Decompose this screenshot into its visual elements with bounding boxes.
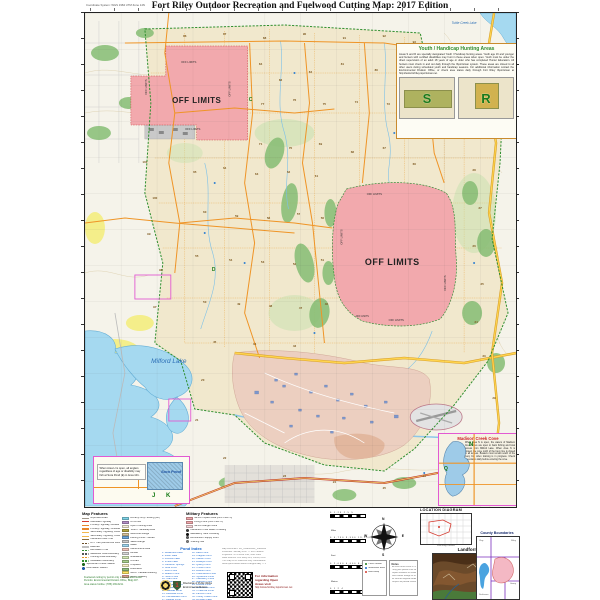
area-number: 55 (195, 254, 199, 258)
area-number: 50 (203, 300, 207, 304)
legend-label: Ammunition Supply Point (190, 537, 218, 540)
area-number: 63 (255, 172, 259, 176)
legend-label: Grassland (130, 556, 142, 559)
legend-label: Secondary Highway, Divided (90, 531, 120, 534)
map-label: OFF LIMITS (389, 318, 404, 322)
area-number: 51 (321, 258, 325, 262)
area-number: 47 (299, 306, 303, 310)
legend-label: Cropland (130, 564, 140, 567)
legend-item: Mandatory Tank Crossing (186, 533, 232, 536)
legend-item: Open Hunting Area (122, 525, 160, 528)
legend-swatch (82, 532, 89, 533)
area-number: 99 (147, 232, 151, 236)
area-number: 29 (492, 396, 496, 400)
county-label: Geary (510, 583, 516, 585)
legend-swatch (122, 548, 129, 551)
legend-item: Hardened Tank Trail (82, 538, 120, 541)
legend-label: Installation Boundary (90, 560, 114, 563)
legend-item: Grassland (122, 556, 160, 559)
map-label: OFF LIMITS (339, 229, 343, 244)
area-number: 69 (319, 142, 323, 146)
map-features-legend: Map Features Improved RoadInterstate Hig… (82, 511, 160, 579)
compass-s: S (382, 553, 384, 557)
symbols-box: Check StationInformation BoardBoat Ramp (362, 560, 387, 596)
legend-label: Interstate Highway (90, 521, 111, 524)
symbol-icon (365, 567, 368, 570)
youth-inset-title: Youth / Handicap Hunting Areas (399, 46, 514, 52)
legend-item: Multi-Use Range (122, 533, 160, 536)
legend-item: Secondary Highway, Undivided (82, 535, 120, 538)
area-number: 76 (293, 98, 297, 102)
legend-item: Fishing Pond / Stream (122, 536, 160, 539)
area-number: 26 (423, 474, 427, 478)
map-label: OFF LIMITS (172, 96, 221, 105)
legend-swatch (122, 552, 129, 555)
legend-swatch (122, 556, 129, 559)
county-label: Clay (479, 540, 483, 542)
legend-label: Open Hunting Area (130, 525, 152, 528)
logos: 1 Directorate of Public Works Environmen… (160, 580, 212, 591)
area-number: 49 (237, 302, 241, 306)
area-number: 68 (351, 150, 355, 154)
isportsman-url[interactable]: http://www.fortriley.isportsman.net (255, 586, 307, 589)
legend-swatch (186, 525, 193, 528)
legend-label: Improved Road (90, 517, 107, 520)
legend-swatch (82, 525, 89, 526)
map-label: OFF LIMITS (367, 192, 382, 196)
legend-swatch (82, 536, 89, 537)
area-number: 64 (223, 166, 227, 170)
legend-item: Brushland (122, 568, 160, 571)
military-features-legend: Military Features MPRC Impact Area (OFF … (186, 511, 232, 544)
credits: Fuelwood cutting by permit only in desig… (84, 576, 160, 586)
area-number: 92 (383, 34, 387, 38)
qr-caption: For information regarding Open Areas vis… (255, 574, 307, 589)
legend-label: Airfield (130, 552, 138, 555)
legend-label: Maneuver Area Boundary (90, 553, 119, 556)
legend-swatch (82, 521, 89, 522)
location-diagram: LOCATION DIAGRAM Fort Riley, Kansas (420, 508, 472, 547)
legend-item: Youth / Handicap Area (122, 529, 160, 532)
legend-item: Primary Highway, Undivided (82, 528, 120, 531)
area-number: 22 (223, 456, 227, 460)
area-number: 84 (259, 62, 263, 66)
legend-item: ATV Trail (Authorized Routes Only) (82, 542, 120, 545)
legend-item: Interstate Highway (82, 521, 120, 524)
area-number: 74 (355, 100, 359, 104)
legend-label: Hardened Tank Trail (90, 538, 113, 541)
sora-note: When Area H is open, all anglers regardl… (97, 464, 146, 480)
legend-label: Training Site (190, 541, 204, 544)
legend-label: Sportsman Check Station (86, 563, 115, 566)
county-label: Riley (511, 540, 516, 542)
legend-item: MOUT Facade Building (122, 571, 160, 574)
area-n-label: N (469, 442, 473, 448)
map-metadata: Map Document: FR_OutdoorRec_Fuelwood_201… (222, 548, 266, 567)
area-number: 45 (213, 340, 217, 344)
legend-item: Sportsman Check Station (82, 563, 120, 566)
legend-swatch (82, 550, 89, 551)
pond-index-title: Pond Index (162, 546, 220, 551)
legend-swatch (122, 560, 129, 563)
madison-creek-inset: Madison Creek Cove When Area N is open, … (438, 433, 517, 506)
area-number: 53 (261, 260, 265, 264)
map-features-title: Map Features (82, 511, 160, 516)
legend-label: Brushland (130, 568, 141, 571)
map-label: OFF LIMITS (185, 127, 200, 131)
legend-swatch (186, 521, 193, 524)
legend-label: Information Station (86, 567, 107, 570)
legend-item: Water (122, 544, 160, 547)
legend-item: Cropland (122, 564, 160, 567)
compass-rose: N E S W (368, 521, 400, 553)
notes-box: Notes All users must check in / out dail… (389, 560, 418, 596)
sora-pond-shape (147, 462, 183, 490)
map-label: OFF LIMITS (144, 79, 148, 94)
sora-pond-label: Sora Pond (161, 469, 181, 474)
legend-swatch (122, 536, 129, 539)
inset-road (94, 487, 154, 488)
legend-swatch (122, 529, 129, 532)
area-number: 59 (235, 214, 239, 218)
military-features-title: Military Features (186, 511, 232, 516)
legend-label: Orchard (130, 560, 139, 563)
legend-label: Fishing Pond / Stream (130, 537, 155, 540)
area-number: 56 (321, 216, 325, 220)
legend-swatch (186, 529, 189, 532)
legend-swatch (82, 557, 89, 558)
area-number: 60 (203, 210, 207, 214)
area-number: 34 (474, 320, 478, 324)
area-number: 58 (267, 216, 271, 220)
area-number: 24 (333, 480, 337, 484)
qr-block: For information regarding Open Areas vis… (227, 572, 307, 598)
area-number: 83 (279, 78, 283, 82)
legend-item: Skeet Range (122, 540, 160, 543)
main-map: OFF LIMITSOFF LIMITSOFF LIMITSOFF LIMITS… (84, 12, 517, 508)
area-number: 23 (283, 474, 287, 478)
legend-label: Youth / Handicap Area (130, 529, 155, 532)
area-number: 77 (261, 102, 265, 106)
legend-label: Archery Only Hunting (AO) (130, 517, 160, 520)
area-number: 33 (482, 354, 486, 358)
map-page: Fort Riley Outdoor Recreation and Fuelwo… (0, 0, 600, 600)
legend-swatch (82, 553, 89, 554)
area-letter: C (249, 97, 253, 103)
legend-item: Airfield (122, 552, 160, 555)
pond-index: Pond Index 1. Breakneck Lake2. Moon Lake… (162, 546, 220, 600)
legend-label: MPRC Impact Area (OFF LIMITS) (194, 517, 232, 520)
area-number: 65 (193, 170, 197, 174)
legend-label: Primary Highway, Divided (90, 524, 119, 527)
location-diagram-title: LOCATION DIAGRAM (420, 508, 472, 512)
legend-swatch (82, 567, 85, 570)
area-number: 52 (293, 262, 297, 266)
legend-item: Archery Only Hunting (AO) (122, 517, 160, 520)
area-number: 100 (152, 196, 157, 200)
legend-swatch (82, 543, 89, 544)
big-red-one-icon: 1 (173, 581, 181, 591)
area-number: 90 (303, 32, 307, 36)
legend-swatch (186, 517, 193, 520)
location-diagram-map (420, 513, 472, 545)
map-label: OFF LIMITS (181, 60, 196, 64)
symbol-icon (365, 563, 368, 566)
map-label: OFF LIMITS (356, 315, 369, 318)
legend-swatch (122, 517, 129, 520)
area-number: 37 (478, 206, 482, 210)
legend-item: Installation Boundary (82, 560, 120, 563)
legend-item: Cantonment Area (122, 548, 160, 551)
legend-item: Orchard (122, 560, 160, 563)
legend-item: Training Site (186, 540, 232, 543)
area-number: 71 (259, 142, 263, 146)
dpw-seal-icon (160, 580, 171, 591)
legend-label: MPRC Danger Zone (194, 525, 217, 528)
legend-item: MPRC Impact Area (OFF LIMITS) (186, 517, 232, 520)
area-q-label: Q (444, 466, 448, 472)
legend-item: Recreation Trail (82, 549, 120, 552)
legend-swatch (122, 544, 129, 547)
area-s-label: S (400, 78, 454, 118)
legend-item: Railroad (82, 546, 120, 549)
legend-swatch (122, 525, 129, 528)
legend-label: Firing Point (OFF LIMITS) (194, 521, 223, 524)
area-number: 36 (472, 244, 476, 248)
county-boundaries-map: Clay Riley Geary Dickinson (476, 536, 520, 600)
area-number: 80 (375, 68, 379, 72)
compass-star (368, 521, 400, 553)
area-number: 101 (142, 160, 147, 164)
legend-swatch (122, 564, 129, 567)
legend-swatch (82, 518, 89, 519)
legend-item: Improved Road (82, 517, 120, 520)
legend-label: Hunting Area Boundary (90, 556, 116, 559)
area-number: 81 (341, 62, 345, 66)
legend-item: Ammunition Supply Point (186, 536, 232, 539)
symbol-item: Information Board (365, 567, 385, 570)
area-number: 98 (159, 268, 163, 272)
symbol-item: Check Station (365, 563, 385, 566)
legend-label: Railroad (90, 546, 100, 549)
youth-inset-body: Areas S and R are specially designated Y… (399, 53, 514, 75)
legend-swatch (82, 546, 89, 548)
area-number: 61 (315, 174, 319, 178)
area-number: 62 (287, 170, 291, 174)
legend-label: Mandatory Tank Crossing (190, 533, 219, 536)
legend-swatch (186, 540, 189, 543)
youth-handicap-inset: Youth / Handicap Hunting Areas Areas S a… (396, 43, 517, 139)
legend-label: Off Limits (130, 521, 141, 524)
area-number: 86 (183, 34, 187, 38)
logo-caption: Directorate of Public Works Environmenta… (183, 582, 212, 588)
map-label: OFF LIMITS (365, 257, 420, 267)
area-number: 46 (325, 302, 329, 306)
qr-code (227, 572, 253, 598)
map-label: OFF LIMITS (228, 81, 232, 96)
area-letter: D (212, 267, 216, 273)
legend-swatch (82, 563, 85, 566)
map-label: Milford Lake (151, 358, 187, 365)
legend-item: Off Limits (122, 521, 160, 524)
sora-pond-inset: When Area H is open, all anglers regardl… (93, 456, 190, 504)
area-number: 87 (223, 32, 227, 36)
legend-item: Secondary Highway, Divided (82, 531, 120, 534)
logo-caption-line: Environmental Division (183, 586, 212, 589)
area-number: 75 (323, 102, 327, 106)
drow-item: Area open/closed status changes daily — … (222, 563, 266, 566)
legend-label: Primary Highway, Undivided (90, 528, 120, 531)
legend-label: Hardened / Low Water Crossing (190, 529, 226, 532)
area-number: 54 (229, 258, 233, 262)
area-k-label: K (166, 493, 170, 499)
area-number: 43 (293, 344, 297, 348)
youth-area-s-map: S (399, 77, 455, 119)
legend-swatch (122, 533, 129, 536)
area-number: 88 (263, 36, 267, 40)
area-number: 35 (480, 282, 484, 286)
scalebar: 0 4,750 9,500 19,000Feet (330, 537, 370, 561)
legend-label: Skeet Range (130, 541, 145, 544)
legend-swatch (122, 540, 129, 543)
legend-label: Cantonment Area (130, 548, 150, 551)
area-number: 38 (472, 168, 476, 172)
area-number: 97 (153, 305, 157, 309)
legend-label: ATV Trail (Authorized Routes Only) (90, 542, 120, 545)
legend-label: MOUT Facade Building (130, 572, 156, 575)
symbol-item: Boat Ramp (365, 571, 385, 574)
map-label: OFF LIMITS (443, 275, 447, 290)
map-label: Tuttle Creek Lake (452, 21, 477, 25)
legend-swatch (186, 533, 189, 536)
area-number: 73 (387, 102, 391, 106)
county-boundaries-inset: County Boundaries Clay Riley Geary Dicki… (476, 531, 518, 600)
symbol-icon (365, 571, 368, 574)
area-number: 25 (383, 486, 387, 490)
madison-cove-map (439, 434, 517, 505)
compass-n: N (382, 517, 384, 521)
county-boundaries-title: County Boundaries (476, 531, 518, 535)
legend-item: Primary Highway, Divided (82, 524, 120, 527)
compass-e: E (402, 534, 404, 538)
area-number: 21 (195, 418, 199, 422)
legend-item: MPRC Danger Zone (186, 525, 232, 528)
legend-label: Secondary Highway, Undivided (90, 535, 120, 538)
compass-w: W (364, 534, 367, 538)
scalebar: 0 1.25 2.5 5Miles (330, 512, 370, 536)
area-number: 48 (269, 304, 273, 308)
registration-ticks (90, 8, 510, 11)
legend-item: Maneuver Area Boundary (82, 553, 120, 556)
legend-label: Multi-Use Range (130, 533, 149, 536)
area-number: 66 (413, 162, 417, 166)
area-j-label: J (152, 493, 155, 499)
area-r-label: R (459, 78, 513, 118)
area-number: 57 (297, 212, 301, 216)
area-number: 67 (383, 146, 387, 150)
legend-item: Hunting Area Boundary (82, 556, 120, 559)
legend-swatch (186, 536, 189, 539)
legend-item: Firing Point (OFF LIMITS) (186, 521, 232, 524)
legend-label: Recreation Trail (90, 549, 108, 552)
legend-item: Information Station (82, 567, 120, 570)
nrow-item: Respect all posted closures. (392, 581, 416, 584)
legend-swatch (122, 571, 129, 574)
area-number: 82 (309, 70, 313, 74)
legend-swatch (82, 528, 89, 529)
legend-swatch (82, 560, 89, 561)
area-number: 20 (201, 378, 205, 382)
legend-swatch (82, 539, 89, 540)
crow-item: Area status hotline: (785) 239-6211. (84, 583, 160, 586)
coordinate-note: Coordinate System: WGS 1984 UTM Zone 14N (86, 3, 145, 7)
area-number: 44 (253, 342, 257, 346)
youth-area-r-map: R (458, 77, 514, 119)
legend-item: Hardened / Low Water Crossing (186, 529, 232, 532)
legend-label: Water (130, 544, 137, 547)
area-number: 91 (343, 36, 347, 40)
legend-swatch (122, 521, 129, 524)
legend-swatch (122, 568, 129, 571)
county-label: Dickinson (479, 594, 488, 596)
area-number: 70 (289, 146, 293, 150)
